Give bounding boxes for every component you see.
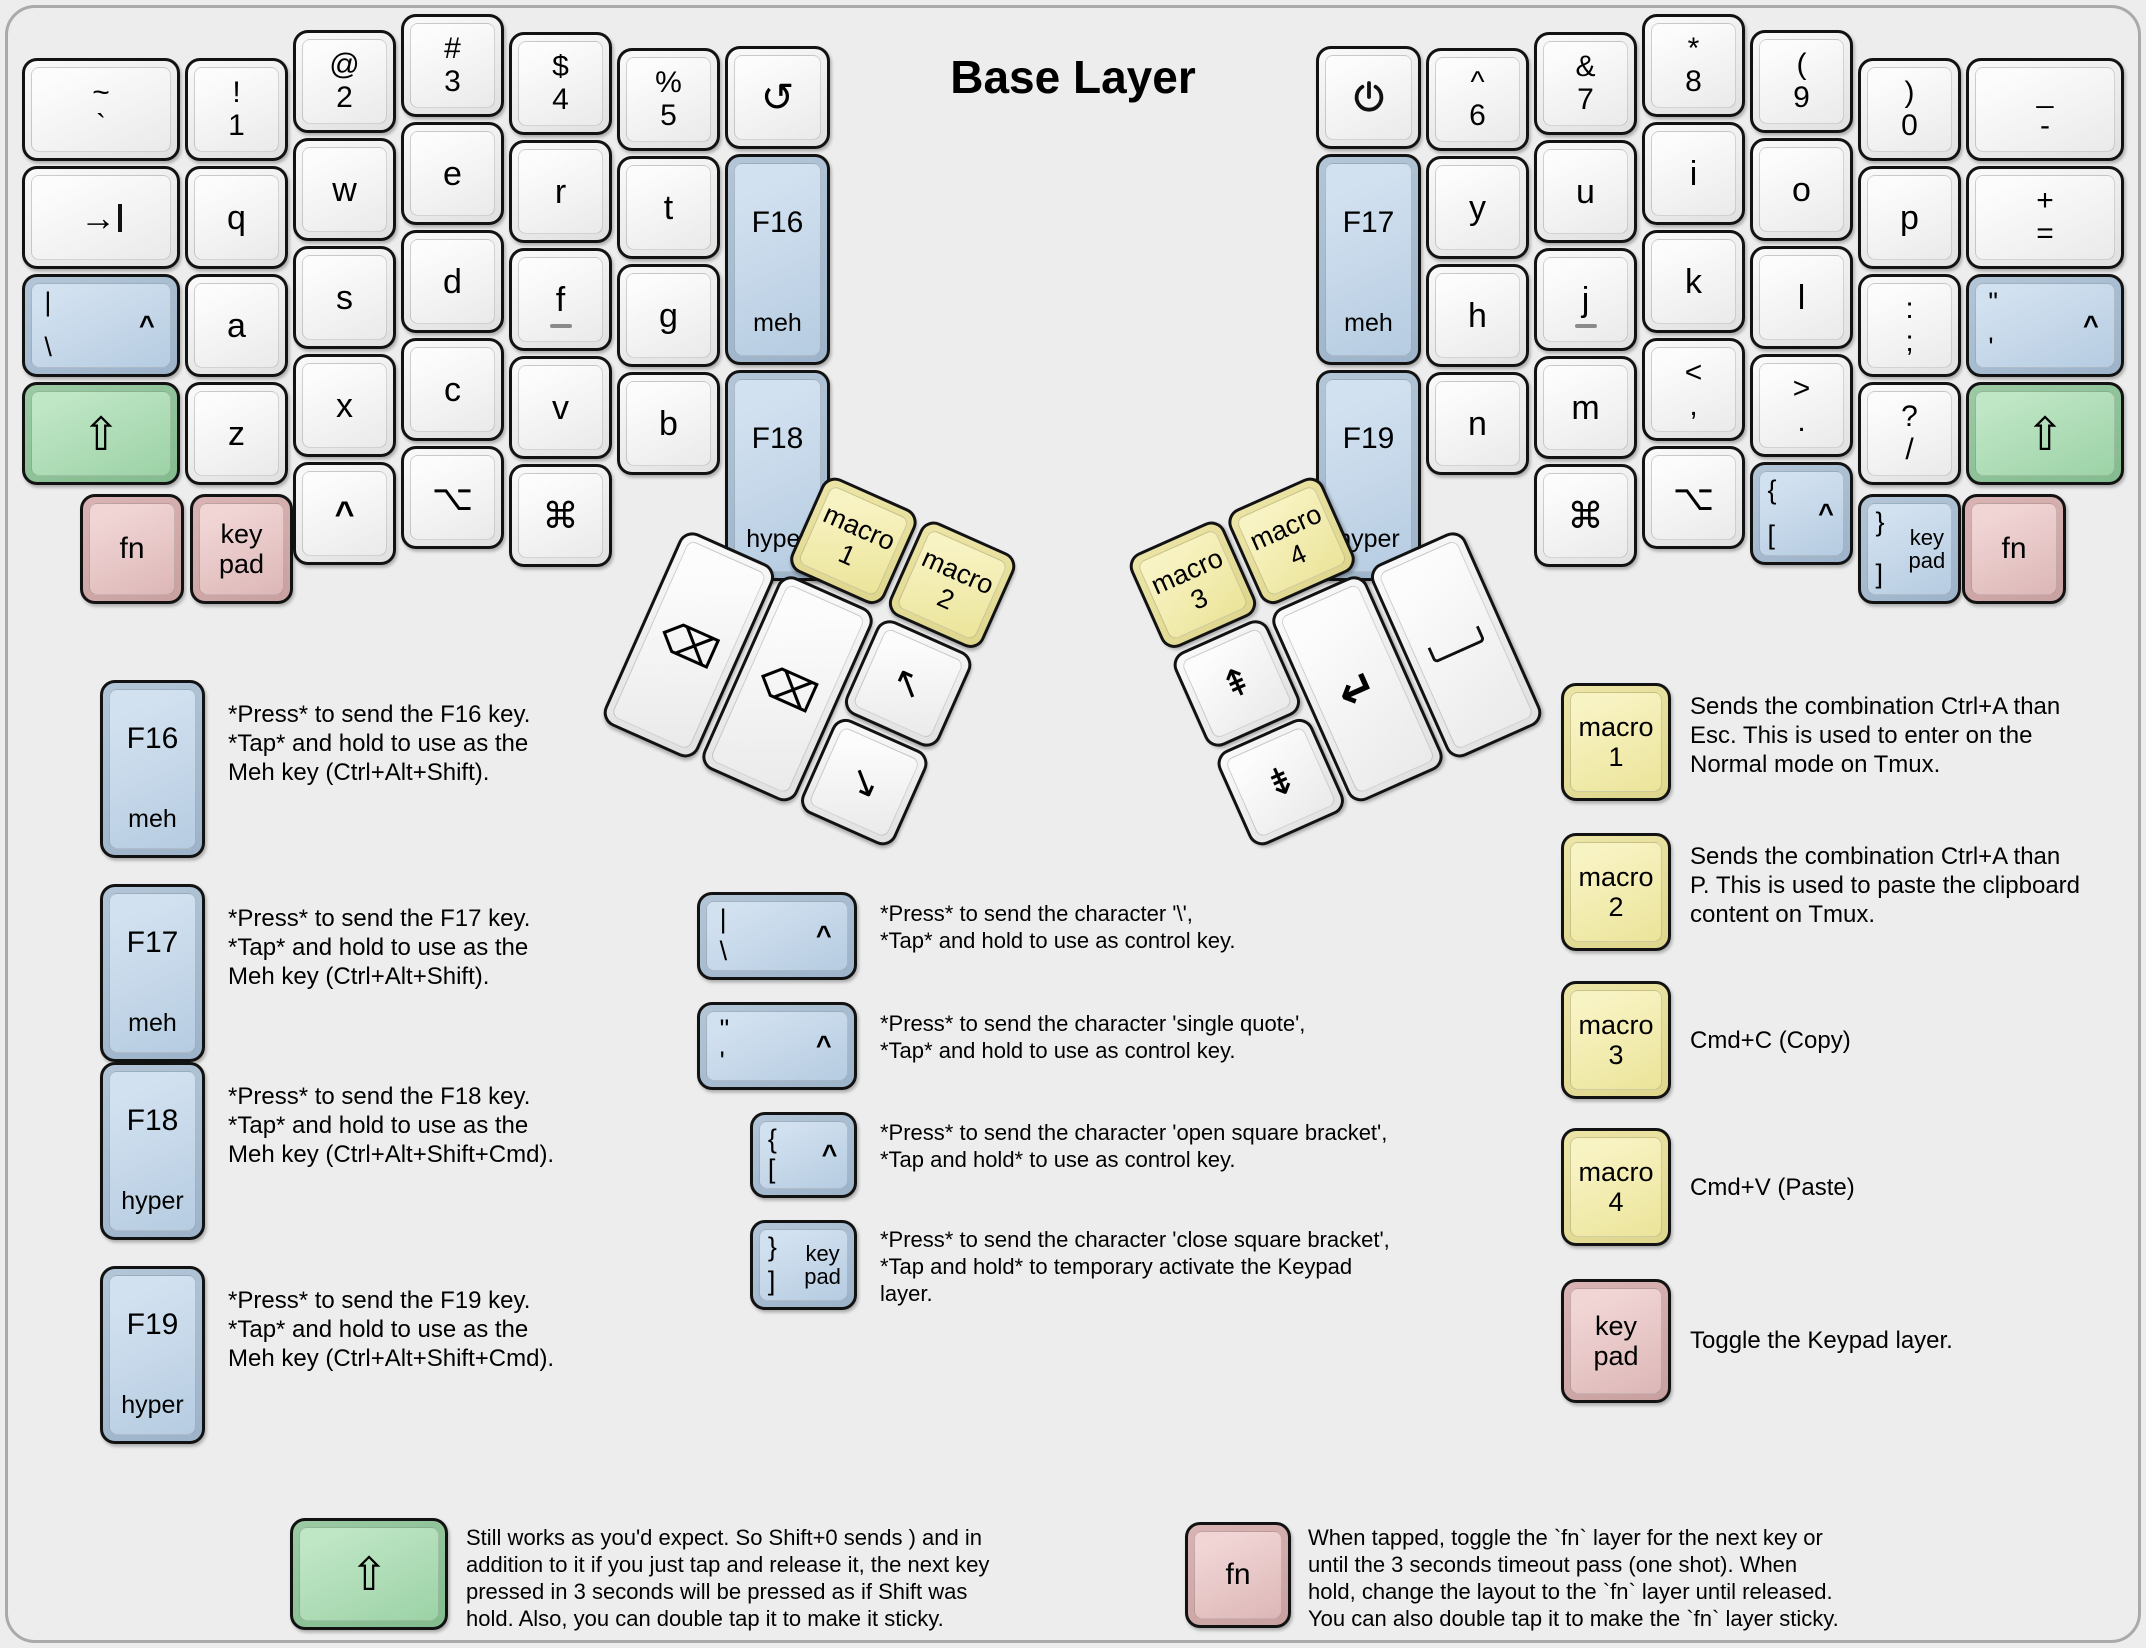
key-f16: F16meh [725, 154, 830, 365]
legend-key-f18-cap: F18hyper [109, 1071, 196, 1231]
key-period-cap: >. [1759, 363, 1844, 448]
key-l-cap: l [1759, 255, 1844, 340]
legend-key-macro-3-cap: macro 3 [1570, 990, 1662, 1090]
key-grave-cap: ~` [31, 67, 171, 152]
key-e-cap: e [410, 131, 495, 216]
key-9-cap: (9 [1759, 39, 1844, 124]
key-x: x [293, 354, 396, 457]
key-semicolon: :; [1858, 274, 1961, 377]
note-closebracket-keypad: *Press* to send the character 'close squ… [880, 1226, 1390, 1307]
key-2-cap: @2 [302, 39, 387, 124]
key-backslash-control-cap: |\^ [31, 283, 171, 368]
legend-key-macro-1-cap: macro 1 [1570, 692, 1662, 792]
key-l: l [1750, 246, 1853, 349]
key-slash-cap: ?/ [1867, 391, 1952, 476]
legend-key-f17: F17meh [100, 884, 205, 1062]
key-f: f [509, 248, 612, 351]
legend-key-f19-cap: F19hyper [109, 1275, 196, 1435]
key-n-cap: n [1435, 381, 1520, 466]
key-o-cap: o [1759, 147, 1844, 232]
key-w: w [293, 138, 396, 241]
key-cmd-right: ⌘ [1534, 464, 1637, 567]
key-r-cap: r [518, 149, 603, 234]
key-undo-cap: ↺ [734, 55, 821, 140]
key-9: (9 [1750, 30, 1853, 133]
legend-key-f18: F18hyper [100, 1062, 205, 1240]
key-power [1316, 46, 1421, 149]
key-m-cap: m [1543, 365, 1628, 450]
key-c-cap: c [410, 347, 495, 432]
legend-key-macro-3: macro 3 [1561, 981, 1671, 1099]
key-fn-left-cap: fn [89, 503, 175, 595]
legend-key-keypad-cap: key pad [1570, 1288, 1662, 1394]
key-4: $4 [509, 32, 612, 135]
key-shift-right: ⇧ [1966, 382, 2124, 485]
legend-key-macro-2-cap: macro 2 [1570, 842, 1662, 942]
home-row-marker [1575, 324, 1597, 328]
keyboard-layout-diagram: Base Layer ~`→|\^⇧fnkey pad!1qaz@2wsx^#3… [0, 0, 2146, 1648]
key-d: d [401, 230, 504, 333]
note-shift: Still works as you'd expect. So Shift+0 … [466, 1524, 989, 1632]
key-f17: F17meh [1316, 154, 1421, 365]
legend-key-fn-cap: fn [1194, 1531, 1282, 1619]
key-7: &7 [1534, 32, 1637, 135]
key-end-cap: ↘ [808, 726, 920, 838]
key-grave: ~` [22, 58, 180, 161]
key-j: j [1534, 248, 1637, 351]
key-comma-cap: <, [1651, 347, 1736, 432]
left-thumb-cluster: ⌫⌫macro 1macro 2↖↘ [599, 429, 1020, 850]
legend-key-keypad: key pad [1561, 1279, 1671, 1403]
key-h: h [1426, 264, 1529, 367]
key-i: i [1642, 122, 1745, 225]
key-f16-cap: F16meh [734, 163, 821, 356]
legend-key-macro-1: macro 1 [1561, 683, 1671, 801]
note-keypad: Toggle the Keypad layer. [1690, 1326, 1953, 1355]
key-period: >. [1750, 354, 1853, 457]
key-n: n [1426, 372, 1529, 475]
legend-key-closebracket-keypad-cap: }]key pad [759, 1229, 848, 1301]
legend-key-shift-cap: ⇧ [299, 1527, 439, 1621]
key-s: s [293, 246, 396, 349]
legend-key-openbracket-control: {[^ [750, 1112, 857, 1198]
note-openbracket-control: *Press* to send the character 'open squa… [880, 1119, 1387, 1173]
note-f18: *Press* to send the F18 key. *Tap* and h… [228, 1082, 554, 1169]
key-8-cap: *8 [1651, 23, 1736, 108]
legend-key-macro-4: macro 4 [1561, 1128, 1671, 1246]
key-o: o [1750, 138, 1853, 241]
key-macro-4-cap: macro 4 [1235, 485, 1347, 597]
key-g: g [617, 264, 720, 367]
key-option-right-cap: ⌥ [1651, 455, 1736, 540]
key-equal-cap: += [1975, 175, 2115, 260]
key-undo: ↺ [725, 46, 830, 149]
key-semicolon-cap: :; [1867, 283, 1952, 368]
key-z: z [185, 382, 288, 485]
key-m: m [1534, 356, 1637, 459]
key-macro-3-cap: macro 3 [1137, 529, 1249, 641]
legend-key-f17-cap: F17meh [109, 893, 196, 1053]
key-8: *8 [1642, 14, 1745, 117]
key-cmd-right-cap: ⌘ [1543, 473, 1628, 558]
legend-key-closebracket-keypad: }]key pad [750, 1220, 857, 1310]
key-5: %5 [617, 48, 720, 151]
key-a-cap: a [194, 283, 279, 368]
legend-key-quote-control: "'^ [697, 1002, 857, 1090]
home-row-marker [550, 324, 572, 328]
legend-key-openbracket-control-cap: {[^ [759, 1121, 848, 1189]
key-option-left: ⌥ [401, 446, 504, 549]
key-3: #3 [401, 14, 504, 117]
legend-key-f16-cap: F16meh [109, 689, 196, 849]
key-v-cap: v [518, 365, 603, 450]
key-closebracket-keypad: }]key pad [1858, 494, 1961, 604]
key-fn-right: fn [1962, 494, 2066, 604]
key-j-cap: j [1543, 257, 1628, 342]
key-b-cap: b [626, 381, 711, 466]
key-control-left-cap: ^ [302, 471, 387, 556]
note-quote-control: *Press* to send the character 'single qu… [880, 1010, 1305, 1064]
key-7-cap: &7 [1543, 41, 1628, 126]
legend-key-macro-4-cap: macro 4 [1570, 1137, 1662, 1237]
key-pagedown-cap: ⇟ [1225, 726, 1337, 838]
note-backslash-control: *Press* to send the character '\', *Tap*… [880, 900, 1235, 954]
legend-key-f16: F16meh [100, 680, 205, 858]
key-3-cap: #3 [410, 23, 495, 108]
key-h-cap: h [1435, 273, 1520, 358]
note-macro-4: Cmd+V (Paste) [1690, 1173, 1855, 1202]
key-v: v [509, 356, 612, 459]
key-quote-control: "'^ [1966, 274, 2124, 377]
key-y-cap: y [1435, 165, 1520, 250]
key-tab: → [22, 166, 180, 269]
key-b: b [617, 372, 720, 475]
key-tab-cap: → [31, 175, 171, 260]
key-equal: += [1966, 166, 2124, 269]
note-macro-2: Sends the combination Ctrl+A than P. Thi… [1690, 842, 2080, 929]
key-cmd-left: ⌘ [509, 464, 612, 567]
key-minus-cap: _- [1975, 67, 2115, 152]
key-a: a [185, 274, 288, 377]
key-home-cap: ↖ [852, 627, 964, 739]
key-fn-left: fn [80, 494, 184, 604]
key-t-cap: t [626, 165, 711, 250]
key-0-cap: )0 [1867, 67, 1952, 152]
key-k-cap: k [1651, 239, 1736, 324]
key-openbracket-control-cap: {[^ [1759, 471, 1844, 556]
key-pageup-cap: ⇞ [1181, 627, 1293, 739]
power-icon [1350, 79, 1388, 117]
key-shift-left: ⇧ [22, 382, 180, 485]
note-f17: *Press* to send the F17 key. *Tap* and h… [228, 904, 530, 991]
key-6-cap: ^6 [1435, 57, 1520, 142]
key-control-left: ^ [293, 462, 396, 565]
key-z-cap: z [194, 391, 279, 476]
key-w-cap: w [302, 147, 387, 232]
key-macro-1-cap: macro 1 [797, 485, 909, 597]
key-q: q [185, 166, 288, 269]
key-minus: _- [1966, 58, 2124, 161]
key-shift-right-cap: ⇧ [1975, 391, 2115, 476]
page-title: Base Layer [950, 50, 1196, 104]
right-thumb-cluster: macro 3macro 4⇞⇟↵ [1125, 429, 1546, 850]
legend-key-macro-2: macro 2 [1561, 833, 1671, 951]
key-e: e [401, 122, 504, 225]
key-c: c [401, 338, 504, 441]
key-f17-cap: F17meh [1325, 163, 1412, 356]
key-slash: ?/ [1858, 382, 1961, 485]
key-backslash-control: |\^ [22, 274, 180, 377]
key-p: p [1858, 166, 1961, 269]
legend-key-quote-control-cap: "'^ [706, 1011, 848, 1081]
key-keypad-left: key pad [190, 494, 293, 604]
key-y: y [1426, 156, 1529, 259]
key-g-cap: g [626, 273, 711, 358]
key-f-cap: f [518, 257, 603, 342]
key-fn-right-cap: fn [1971, 503, 2057, 595]
note-f19: *Press* to send the F19 key. *Tap* and h… [228, 1286, 554, 1373]
note-fn: When tapped, toggle the `fn` layer for t… [1308, 1524, 1839, 1632]
key-closebracket-keypad-cap: }]key pad [1867, 503, 1952, 595]
note-macro-1: Sends the combination Ctrl+A than Esc. T… [1690, 692, 2060, 779]
key-quote-control-cap: "'^ [1975, 283, 2115, 368]
key-6: ^6 [1426, 48, 1529, 151]
legend-key-backslash-control-cap: |\^ [706, 901, 848, 971]
key-5-cap: %5 [626, 57, 711, 142]
key-t: t [617, 156, 720, 259]
key-x-cap: x [302, 363, 387, 448]
key-q-cap: q [194, 175, 279, 260]
key-d-cap: d [410, 239, 495, 324]
key-keypad-left-cap: key pad [199, 503, 284, 595]
key-power-cap [1325, 55, 1412, 140]
key-0: )0 [1858, 58, 1961, 161]
key-openbracket-control: {[^ [1750, 462, 1853, 565]
key-r: r [509, 140, 612, 243]
key-p-cap: p [1867, 175, 1952, 260]
space-icon [1427, 626, 1485, 664]
key-cmd-left-cap: ⌘ [518, 473, 603, 558]
note-f16: *Press* to send the F16 key. *Tap* and h… [228, 700, 530, 787]
legend-key-f19: F19hyper [100, 1266, 205, 1444]
key-option-right: ⌥ [1642, 446, 1745, 549]
legend-key-backslash-control: |\^ [697, 892, 857, 980]
key-4-cap: $4 [518, 41, 603, 126]
key-1-cap: !1 [194, 67, 279, 152]
key-i-cap: i [1651, 131, 1736, 216]
key-2: @2 [293, 30, 396, 133]
key-u-cap: u [1543, 149, 1628, 234]
legend-key-shift: ⇧ [290, 1518, 448, 1630]
key-macro-2-cap: macro 2 [896, 529, 1008, 641]
key-option-left-cap: ⌥ [410, 455, 495, 540]
key-1: !1 [185, 58, 288, 161]
key-shift-left-cap: ⇧ [31, 391, 171, 476]
key-s-cap: s [302, 255, 387, 340]
key-u: u [1534, 140, 1637, 243]
key-k: k [1642, 230, 1745, 333]
key-comma: <, [1642, 338, 1745, 441]
legend-key-fn: fn [1185, 1522, 1291, 1628]
note-macro-3: Cmd+C (Copy) [1690, 1026, 1851, 1055]
tab-icon: → [80, 200, 122, 236]
